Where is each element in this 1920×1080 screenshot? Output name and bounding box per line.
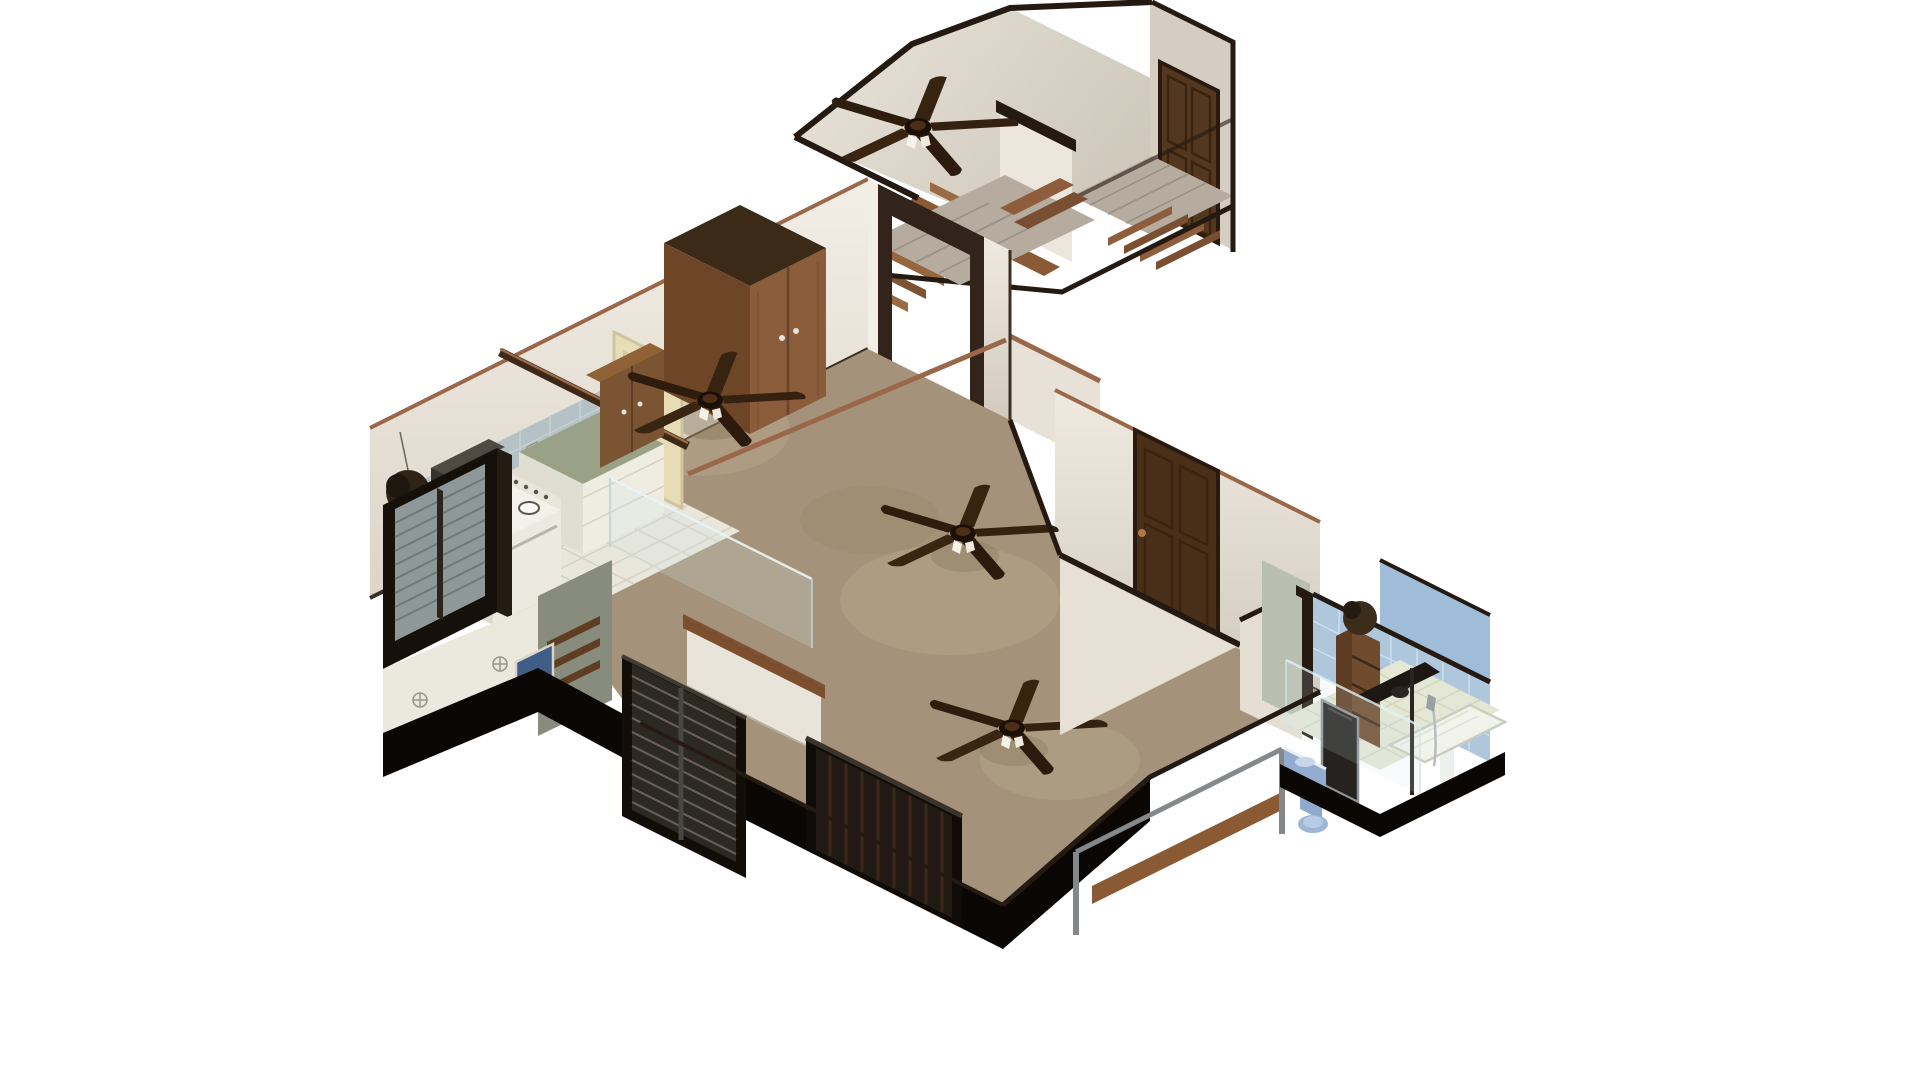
floorplan-render [0, 0, 1920, 1080]
door-knob [1138, 529, 1146, 537]
